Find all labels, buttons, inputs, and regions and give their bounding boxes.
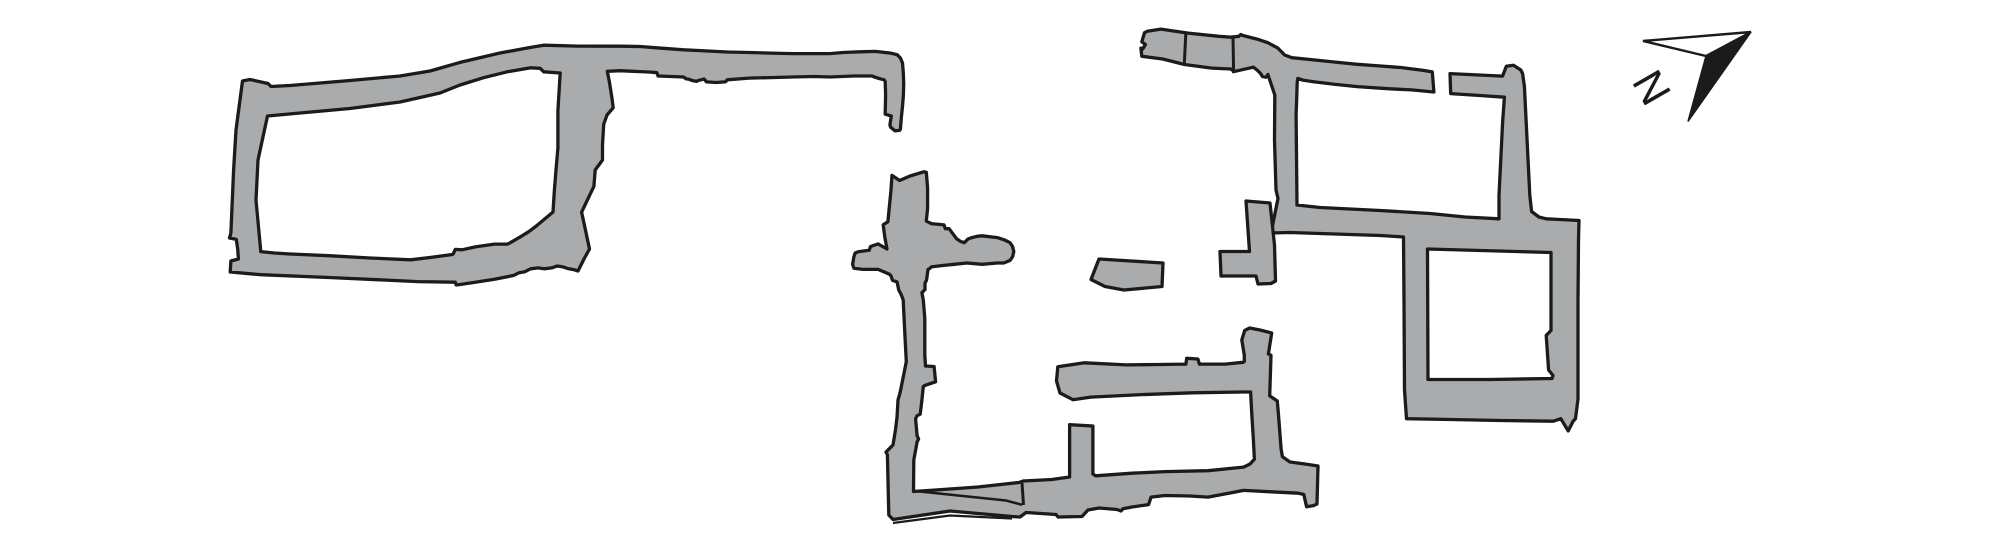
svg-text:N: N [1622,63,1679,114]
